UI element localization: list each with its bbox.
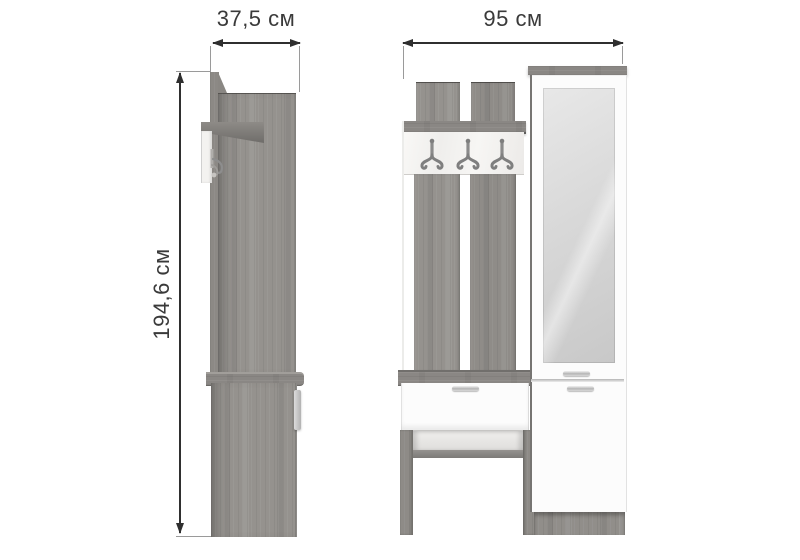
- extension-line: [176, 71, 211, 72]
- extension-line: [622, 46, 623, 64]
- wall-plank-right: [470, 174, 516, 371]
- extension-line: [210, 46, 211, 71]
- width-dimension-line: [403, 42, 623, 44]
- coat-hook-icon: [455, 138, 481, 173]
- arrow-left-icon: [212, 39, 223, 47]
- coat-hook-side-icon: [208, 149, 228, 181]
- extension-line: [403, 46, 404, 79]
- width-dimension-label: 95 см: [453, 6, 573, 32]
- wall-plank-left-top: [416, 82, 460, 124]
- depth-dimension-label: 37,5 см: [196, 6, 316, 32]
- height-dimension-label: 194,6 см: [149, 232, 175, 356]
- mirror: [543, 88, 615, 363]
- arrow-down-icon: [176, 523, 184, 534]
- coat-hook-icon: [489, 138, 515, 173]
- side-view-drawer-handle: [294, 390, 301, 430]
- arrow-up-icon: [176, 72, 184, 83]
- side-view-lower-cabinet: [211, 383, 297, 537]
- drawer-handle: [452, 386, 479, 391]
- wall-plank-right-top: [471, 82, 515, 124]
- height-dimension-line: [179, 73, 181, 533]
- side-view-top-slope: [218, 72, 227, 93]
- cabinet-door-gap: [531, 379, 624, 382]
- cabinet-top-strip: [528, 66, 627, 75]
- shoe-niche-interior: [413, 430, 523, 452]
- mirror-door-handle: [563, 371, 590, 376]
- shoe-niche-shelf: [413, 450, 523, 458]
- wall-plank-left: [414, 174, 460, 371]
- mirror-reflection: [543, 88, 615, 363]
- cabinet-door-handle: [567, 386, 594, 391]
- extension-line: [176, 536, 213, 537]
- coat-hook-icon: [419, 138, 445, 173]
- left-side-panel-edge: [402, 121, 404, 371]
- depth-dimension-line: [213, 42, 300, 44]
- furniture-dimension-diagram: 37,5 см 95 см 194,6 см: [0, 0, 800, 560]
- extension-line: [299, 46, 300, 92]
- bench-leg-left: [400, 430, 413, 535]
- cabinet-plinth: [534, 512, 625, 535]
